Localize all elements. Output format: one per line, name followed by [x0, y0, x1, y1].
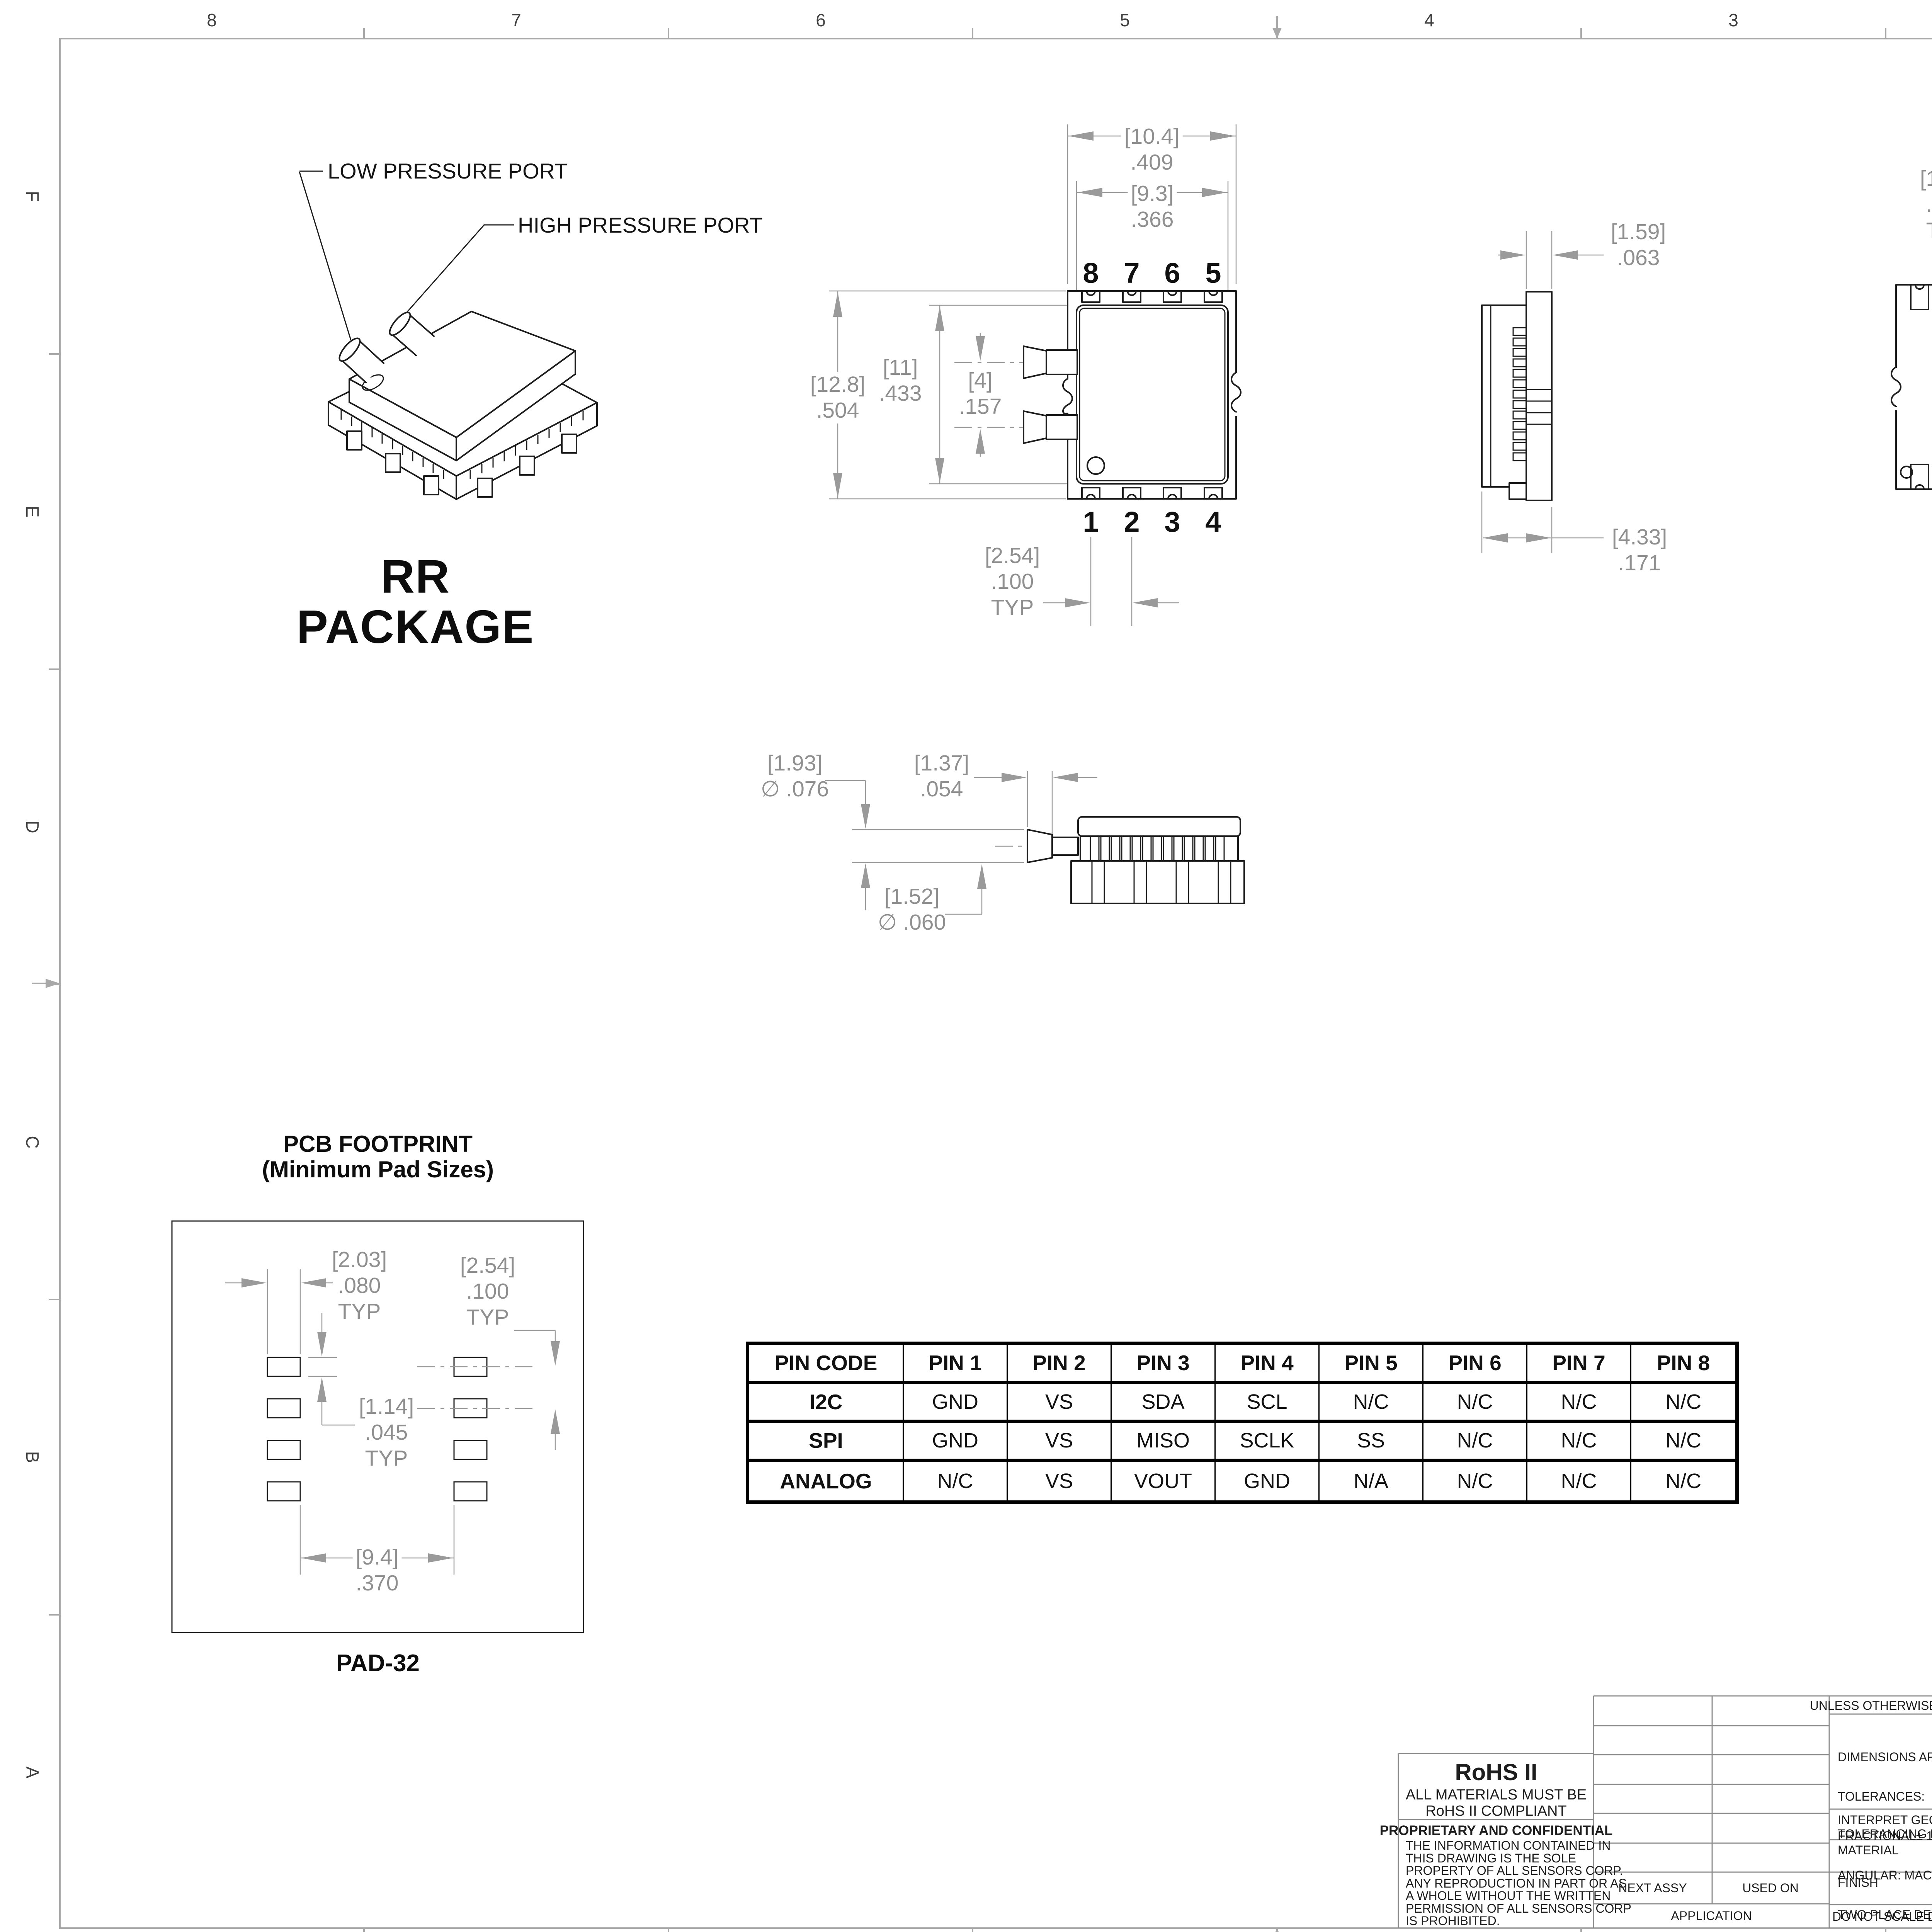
drawing-sheet: 8 7 6 5 4 3 2 1 8 7 6 5 4 3 2 1 F E D C …	[0, 0, 1932, 1932]
rohs-line2: RoHS II COMPLIANT	[1425, 1803, 1566, 1820]
zone-row-e: E	[22, 506, 43, 518]
dim-footprint-pitch: [2.54] .100 TYP	[460, 1253, 515, 1330]
pin-table-row-code: SPI	[749, 1423, 904, 1462]
interpret-line2: TOLERANCING PER:	[1838, 1827, 1932, 1841]
zone-row-b: B	[22, 1451, 43, 1463]
back-outline	[1891, 285, 1932, 489]
proprietary-title: PROPRIETARY AND CONFIDENTIAL	[1380, 1823, 1613, 1838]
application-label: APPLICATION	[1671, 1909, 1752, 1923]
dim-bottom-id: [1.52] ∅ .060	[878, 884, 946, 935]
pin-table-row-code: I2C	[749, 1384, 904, 1423]
zone-row-d: D	[22, 820, 43, 833]
rohs-line1: ALL MATERIALS MUST BE	[1406, 1787, 1587, 1803]
dim-side-depth: [4.33] .171	[1612, 524, 1667, 576]
bottomview-port	[1027, 830, 1078, 862]
high-pressure-port-label: HIGH PRESSURE PORT	[518, 213, 763, 238]
pin-table-cell: GND	[904, 1384, 1008, 1423]
zone-col-4: 4	[1424, 10, 1434, 31]
zone-col-3: 3	[1728, 10, 1738, 31]
front-pin-8: 8	[1083, 257, 1099, 289]
finish-label: FINISH	[1838, 1876, 1878, 1890]
package-title-line1: RR	[381, 553, 450, 600]
rohs-title: RoHS II	[1455, 1759, 1537, 1786]
dim-front-body-width: [9.3] .366	[1128, 181, 1177, 233]
zone-row-f: F	[22, 191, 43, 202]
zone-row-a: A	[22, 1767, 43, 1779]
dim-footprint-pad-width: [2.03] .080 TYP	[332, 1247, 387, 1325]
footprint-name: PAD-32	[336, 1651, 420, 1676]
dim-bottom-length: [1.37] .054	[914, 750, 969, 802]
pin-code-table: PIN CODE PIN 1 PIN 2 PIN 3 PIN 4 PIN 5 P…	[746, 1342, 1739, 1504]
front-view	[792, 112, 1333, 653]
back-view	[1816, 151, 1932, 595]
dim-front-port-pitch: [4] .157	[956, 368, 1005, 420]
front-pin-5: 5	[1205, 257, 1221, 289]
low-pressure-port-label: LOW PRESSURE PORT	[328, 158, 568, 184]
dim-side-thickness: [1.59] .063	[1611, 219, 1666, 271]
used-on-label: USED ON	[1742, 1881, 1799, 1895]
dim-front-overall-width: [10.4] .409	[1121, 124, 1183, 175]
interpret-line1: INTERPRET GEOMETRIC	[1838, 1813, 1932, 1827]
dim-footprint-span: [9.4] .370	[353, 1544, 402, 1596]
footprint-subtitle: (Minimum Pad Sizes)	[262, 1157, 494, 1182]
front-pin-2: 2	[1124, 505, 1139, 538]
front-pin-3: 3	[1164, 505, 1180, 538]
front-pin-1: 1	[1083, 505, 1099, 538]
footprint-title: PCB FOOTPRINT	[283, 1131, 473, 1157]
zone-col-7: 7	[511, 10, 521, 31]
zone-col-8: 8	[207, 10, 217, 31]
zone-col-5: 5	[1120, 10, 1130, 31]
pin-table-row-code: ANALOG	[749, 1462, 904, 1501]
dim-footprint-pad-height: [1.14] .045 TYP	[359, 1394, 414, 1471]
front-pin-4: 4	[1205, 505, 1221, 538]
bottomview-outline	[1027, 817, 1244, 903]
dim-front-pin-pitch: [2.54] .100 TYP	[985, 543, 1040, 621]
front-pin-6: 6	[1164, 257, 1180, 289]
isometric-view	[270, 147, 715, 572]
dim-front-overall-height: [12.8] .504	[807, 372, 869, 423]
dim-front-body-height: [11] .433	[879, 355, 922, 406]
specs-header: UNLESS OTHERWISE SPECIFIED:	[1810, 1699, 1932, 1713]
next-assy-label: NEXT ASSY	[1618, 1881, 1687, 1895]
dim-bottom-od: [1.93] ∅ .076	[761, 750, 829, 802]
dim-back-notch: [1.12] .044 TYP	[1920, 166, 1932, 243]
side-outline	[1482, 292, 1552, 500]
front-pin-7: 7	[1124, 257, 1139, 289]
material-label: MATERIAL	[1838, 1843, 1899, 1857]
pin-table-header: PIN CODE	[749, 1345, 904, 1384]
zone-col-6: 6	[816, 10, 826, 31]
zone-row-c: C	[22, 1136, 43, 1148]
front-outline	[1024, 291, 1242, 499]
package-title-line2: PACKAGE	[296, 603, 534, 651]
proprietary-text: THE INFORMATION CONTAINED IN THIS DRAWIN…	[1406, 1839, 1631, 1927]
do-not-scale-label: DO NOT SCALE DRAWING	[1832, 1910, 1932, 1924]
